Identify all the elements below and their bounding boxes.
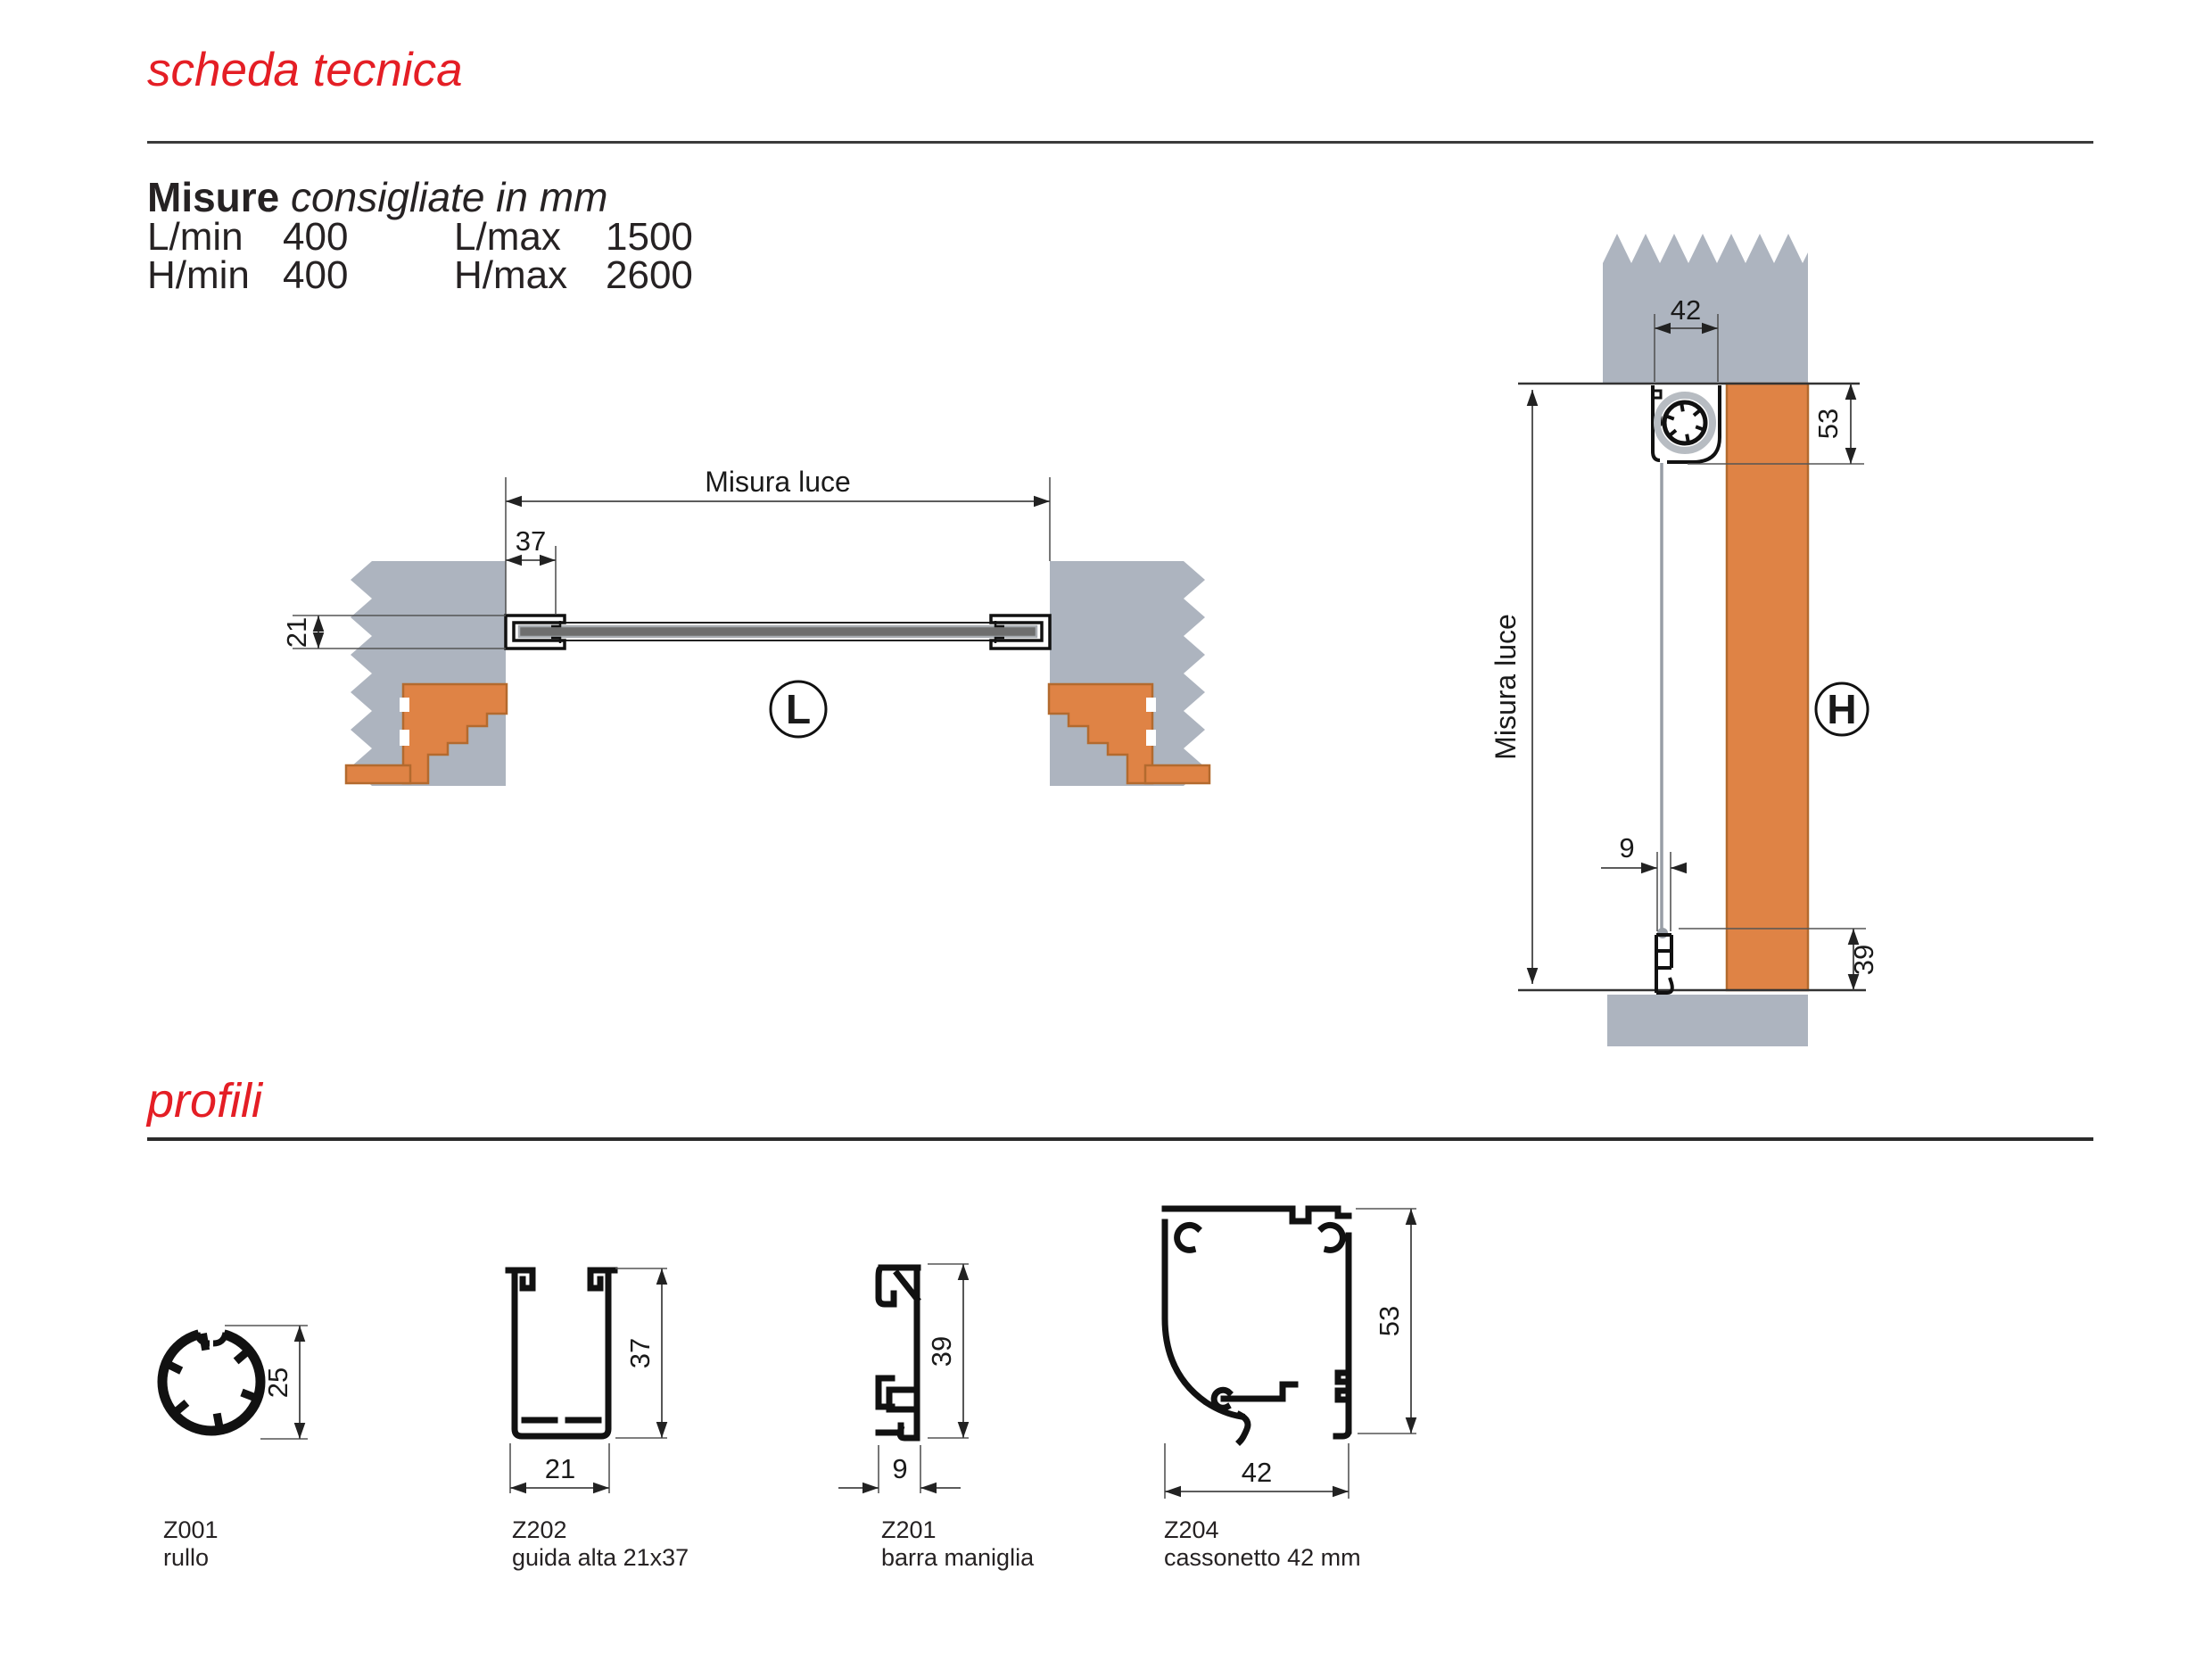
- blind-slat: [514, 623, 1042, 640]
- cassonetto-box: [1653, 385, 1720, 462]
- brick-notch: [1146, 730, 1156, 746]
- dim-label-39: 39: [926, 1336, 957, 1367]
- sill-block: [1607, 995, 1808, 1046]
- badge-l-letter: L: [786, 686, 811, 732]
- wall-top: [1603, 234, 1808, 384]
- handle-bar-profile: [1656, 935, 1672, 993]
- dim-misura-luce-h: Misura luce: [1490, 390, 1532, 984]
- dim-label-53: 53: [1812, 409, 1844, 439]
- brick-notch: [400, 730, 409, 746]
- roller-profile-icon: [162, 1333, 260, 1431]
- dim-misura-luce-l: Misura luce: [506, 466, 1050, 614]
- profile-z001-rullo: 25: [162, 1326, 308, 1439]
- roller-icon: [1657, 395, 1713, 450]
- dim-label-25: 25: [262, 1367, 293, 1398]
- dim-39-z201: 39: [926, 1264, 969, 1438]
- brick-notch: [400, 698, 409, 712]
- dim-label-9: 9: [1619, 832, 1634, 863]
- dim-53-z204: 53: [1356, 1209, 1416, 1434]
- drawing-h-vertical-section: Misura luce 42 53 9: [1490, 234, 1879, 1046]
- dim-21-z202: 21: [510, 1443, 609, 1493]
- technical-drawings: Misura luce 37 21 L: [0, 0, 2212, 1669]
- badge-l: L: [771, 682, 826, 737]
- drawing-l-horizontal-section: Misura luce 37 21 L: [281, 466, 1209, 786]
- badge-h-letter: H: [1827, 686, 1856, 732]
- profile-z201-barra: 39 9: [838, 1264, 969, 1493]
- datasheet-page: scheda tecnica Misure consigliate in mm …: [0, 0, 2212, 1669]
- dim-label-21: 21: [281, 617, 312, 648]
- dim-label-37: 37: [624, 1338, 656, 1368]
- profile-z204-cassonetto: 53 42: [1165, 1209, 1416, 1499]
- dim-label-42: 42: [1671, 294, 1701, 326]
- badge-h: H: [1816, 683, 1868, 735]
- dim-37-z202: 37: [615, 1268, 667, 1438]
- brick-notch: [1146, 698, 1156, 712]
- profile-z202-guida: 37 21: [508, 1268, 667, 1493]
- dim-label-misura-luce: Misura luce: [705, 466, 851, 498]
- dim-label-9: 9: [892, 1453, 907, 1484]
- dim-label-misura-luce: Misura luce: [1490, 614, 1522, 760]
- dim-42-z204: 42: [1165, 1443, 1349, 1499]
- dim-label-42: 42: [1242, 1457, 1272, 1488]
- dim-9: 9: [1601, 832, 1684, 931]
- dim-label-39: 39: [1848, 945, 1879, 975]
- dim-label-37: 37: [516, 525, 546, 557]
- window-frame-column: [1727, 384, 1808, 990]
- dim-label-21: 21: [545, 1453, 575, 1484]
- dim-9-z201: 9: [838, 1445, 961, 1493]
- dim-37: 37: [506, 525, 556, 614]
- dim-label-53: 53: [1374, 1306, 1405, 1336]
